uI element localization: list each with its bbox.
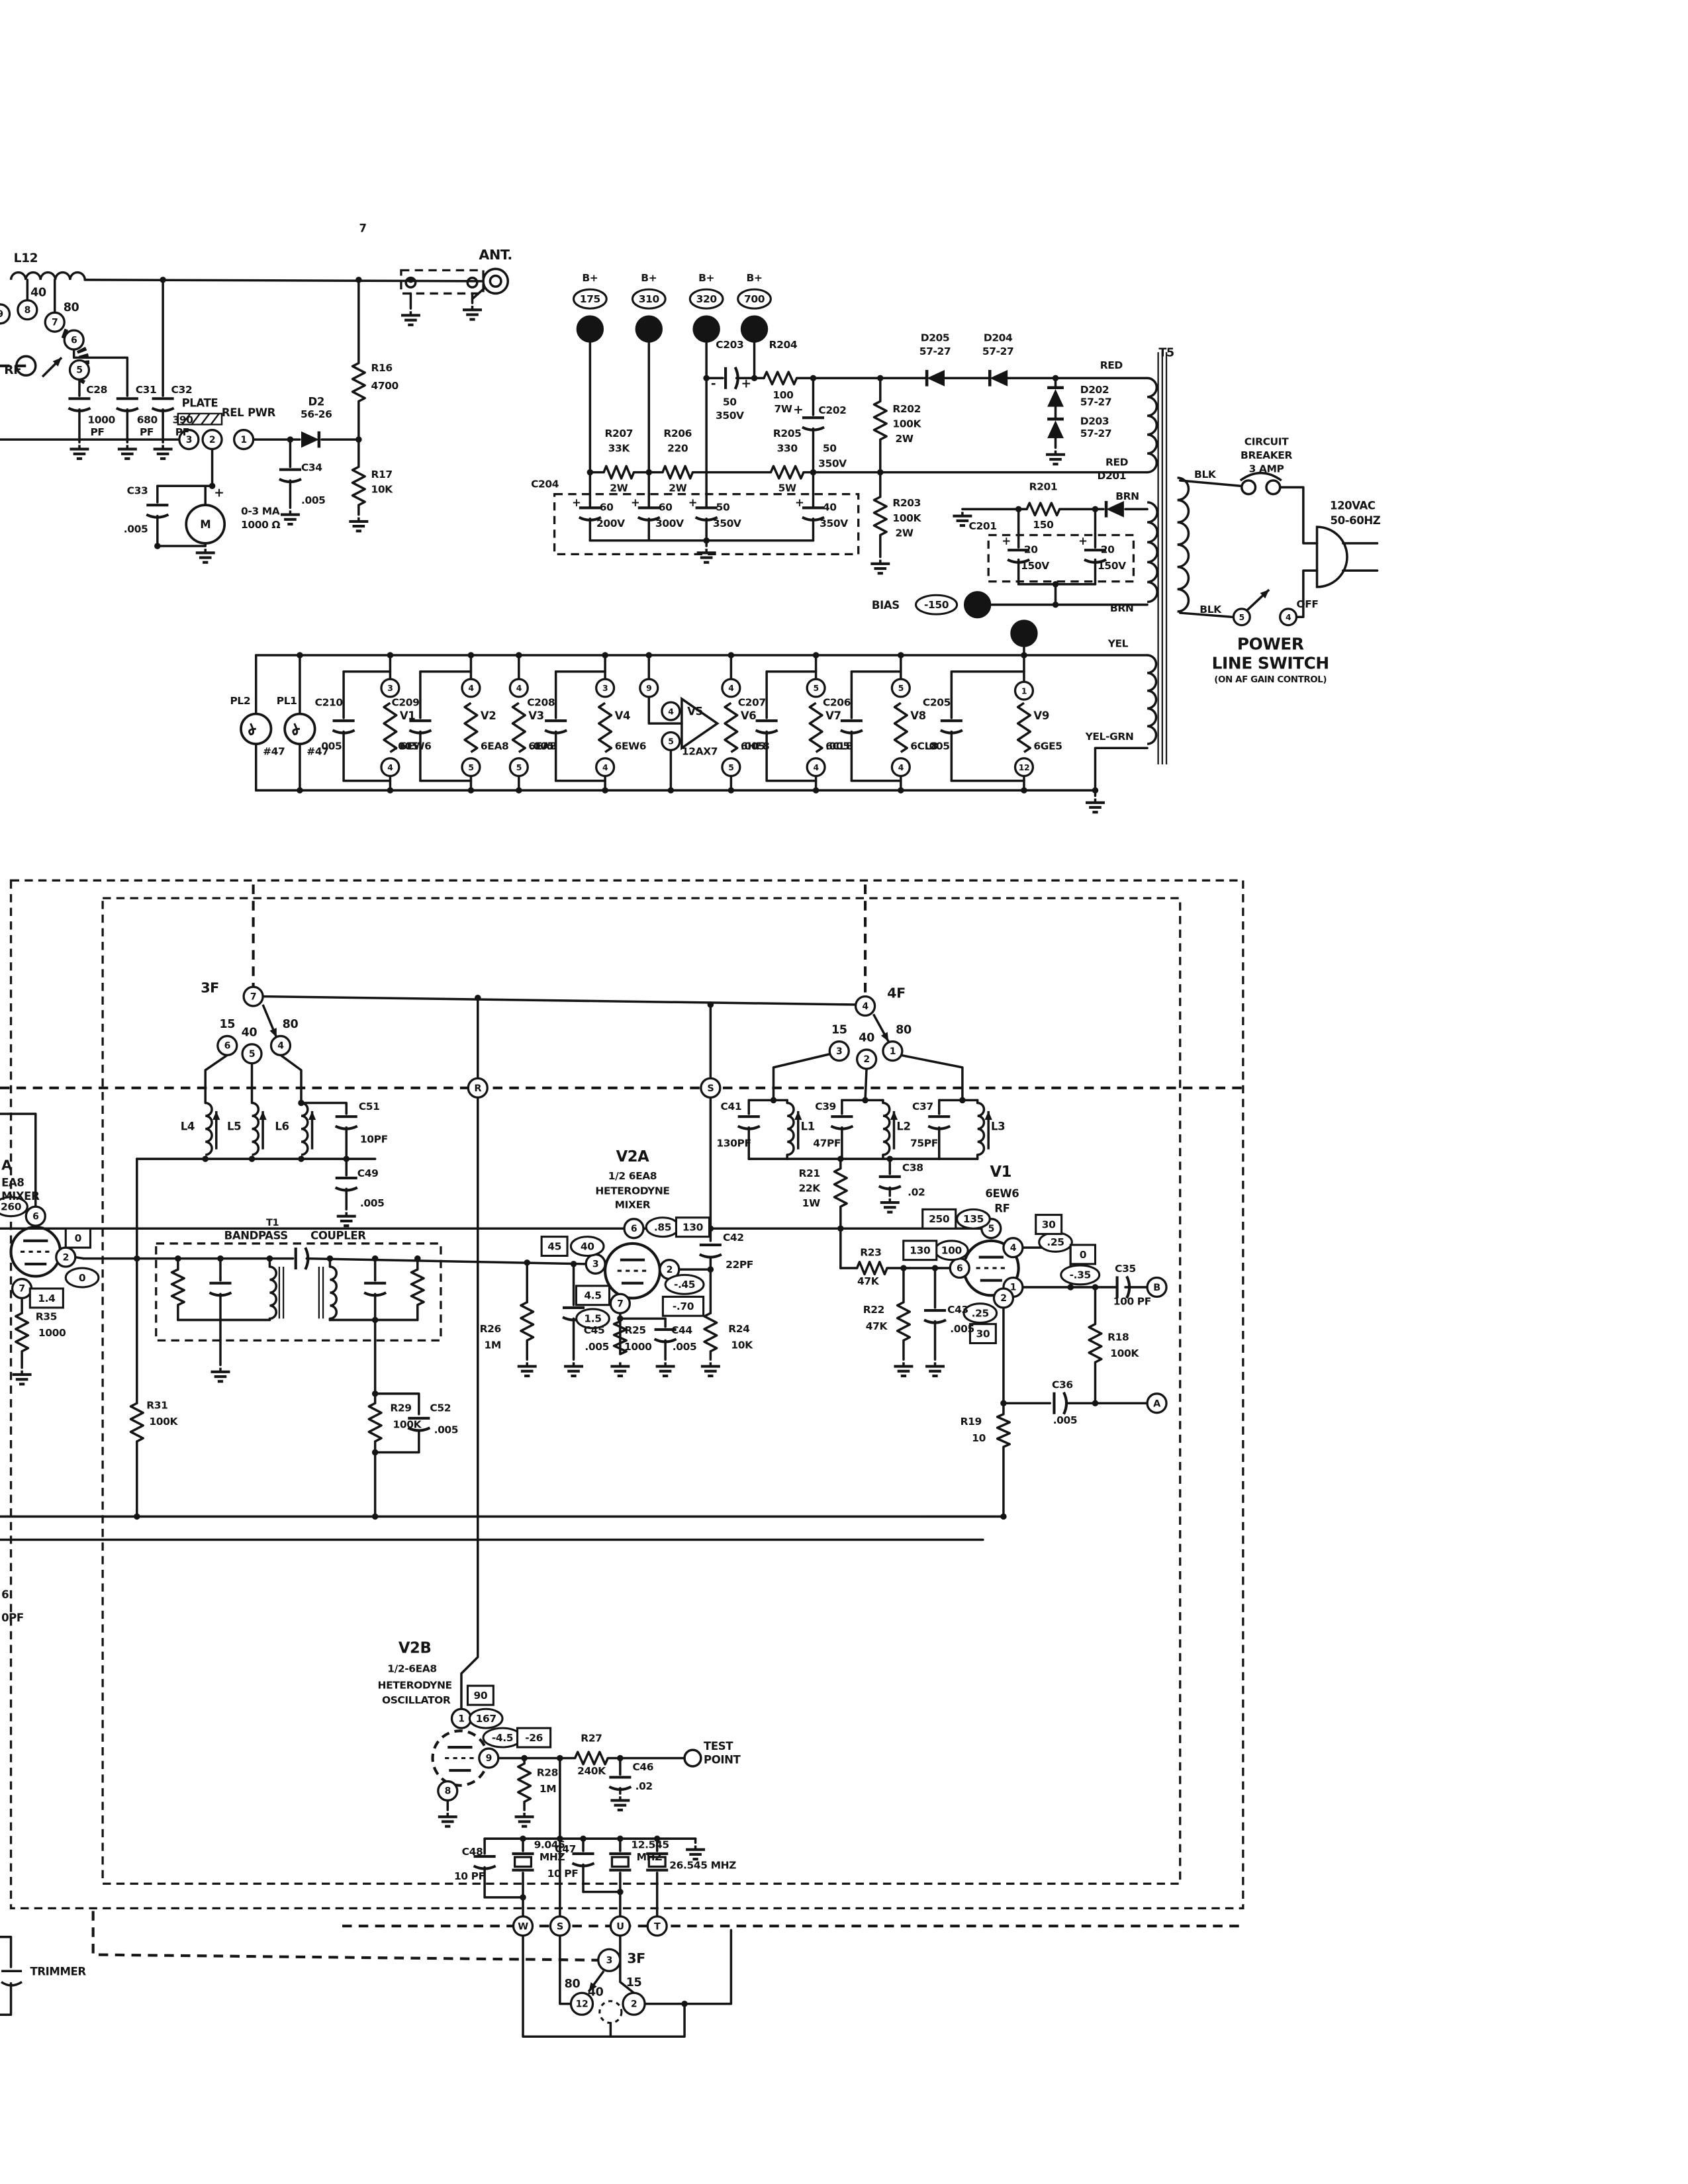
pin-label-2: 2 [63, 1252, 69, 1263]
junction-dot [877, 375, 884, 381]
resistor-v-24 [1018, 703, 1031, 752]
junction-dot [898, 652, 904, 658]
junction-dot [1000, 1514, 1007, 1520]
coil-v-6 [269, 1267, 276, 1318]
junction-dot [372, 1390, 379, 1396]
junction-dot [1021, 652, 1027, 658]
label-pf: PF [90, 426, 104, 438]
pin-label-5: 5 [1239, 612, 1244, 622]
junction-dot [524, 1259, 530, 1265]
label-40: 40 [823, 501, 837, 513]
label-c49: C49 [357, 1167, 379, 1179]
arrow-head [259, 1111, 266, 1120]
label-r35: R35 [36, 1310, 57, 1322]
circle-1 [490, 276, 501, 287]
label-c47: C47 [555, 1843, 576, 1855]
label-10k: 10K [731, 1340, 753, 1351]
pin-label-3: 3 [836, 1046, 842, 1057]
diode [1047, 420, 1064, 438]
junction-dot [703, 375, 710, 381]
pin-label-5: 5 [988, 1224, 994, 1234]
pin-label-4: 4 [516, 683, 522, 693]
label-.005: .005 [825, 740, 850, 752]
label-c32: C32 [171, 384, 193, 396]
label-5w: 5W [778, 482, 796, 494]
label-2w: 2W [669, 482, 686, 494]
junction-dot [728, 652, 735, 658]
voltage-box-label: 250 [929, 1213, 950, 1225]
junction-dot [327, 1255, 334, 1261]
voltage-oval-label: 167 [476, 1713, 496, 1725]
label-26.545-mhz: 26.545 MHZ [669, 1860, 736, 1872]
arrow-head [890, 1111, 898, 1120]
label-r25: R25 [624, 1324, 645, 1336]
label-.005: .005 [530, 740, 554, 752]
label-150v: 150V [1098, 560, 1126, 572]
junction-dot [343, 1156, 350, 1161]
label-yel-grn: YEL-GRN [1085, 731, 1134, 743]
label-.005: .005 [124, 523, 148, 535]
terminal-letter-F: F [1019, 625, 1029, 641]
label-v4: V4 [615, 709, 630, 722]
pin-label-5: 5 [249, 1049, 255, 1060]
label-60: 60 [659, 501, 673, 513]
label-d2: D2 [308, 396, 324, 408]
terminal-letter-R: R [474, 1083, 481, 1094]
label-l6: L6 [275, 1120, 289, 1133]
resistor-v-15 [518, 1764, 531, 1802]
label-.005: .005 [673, 1341, 697, 1353]
label-r16: R16 [371, 362, 392, 374]
junction-dot [646, 469, 653, 475]
label-red: RED [1100, 359, 1123, 371]
junction-dot [728, 787, 735, 793]
label-v1: V1 [400, 709, 415, 722]
voltage-oval-label: 310 [639, 293, 660, 305]
wire-177 [865, 1068, 867, 1101]
label-r23: R23 [860, 1247, 881, 1259]
crystal-body [612, 1857, 628, 1866]
capacitor-plate-curved [700, 1254, 722, 1257]
pin-label-4: 4 [277, 1041, 284, 1052]
voltage-oval-label: 135 [963, 1213, 984, 1225]
label-r205: R205 [773, 428, 802, 439]
label-heterodyne: HETERODYNE [378, 1679, 452, 1691]
coil-0 [11, 273, 85, 280]
label-d201: D201 [1098, 470, 1127, 482]
label-c44: C44 [671, 1324, 692, 1336]
voltage-oval-label: 40 [581, 1240, 594, 1252]
wire-130 [461, 1097, 478, 1709]
label-.005: .005 [301, 494, 326, 506]
label-heterodyne: HETERODYNE [595, 1185, 669, 1197]
pin-label-7: 7 [617, 1298, 623, 1309]
label-100k: 100K [393, 1418, 422, 1430]
line-plug [1317, 527, 1347, 587]
label-c33: C33 [127, 485, 148, 497]
label-350v: 350V [820, 518, 848, 529]
label-mixer: MIXER [1, 1190, 40, 1203]
arrow-head [308, 1111, 316, 1120]
junction-dot [249, 1156, 256, 1161]
label-1000: 1000 [624, 1341, 652, 1353]
label-4700: 4700 [371, 380, 399, 392]
label-.005: .005 [318, 740, 342, 752]
coil-v-3 [787, 1103, 794, 1155]
junction-dot [287, 436, 294, 442]
label-120vac: 120VAC [1330, 499, 1376, 512]
circle-6 [1266, 480, 1280, 494]
junction-dot [387, 652, 394, 658]
label-50: 50 [823, 443, 837, 455]
resistor-h-6 [575, 1752, 608, 1764]
label-80: 80 [64, 301, 79, 314]
label-off: OFF [1297, 598, 1319, 610]
junction-dot [898, 787, 904, 793]
label-bandpass: BANDPASS [224, 1230, 288, 1242]
label-l5: L5 [227, 1120, 241, 1133]
resistor-v-3 [874, 497, 886, 535]
junction-dot [372, 1449, 379, 1455]
pin-label-1: 1 [1021, 686, 1027, 696]
voltage-box-label: 30 [976, 1328, 990, 1340]
terminal-letter-D: D [749, 322, 760, 338]
label-l1: L1 [801, 1120, 815, 1133]
label-57-27: 57-27 [1080, 428, 1111, 439]
pin-label-6: 6 [957, 1263, 963, 1274]
coil-v-10 [1147, 655, 1156, 744]
label-r21: R21 [799, 1167, 820, 1179]
label-pl2: PL2 [230, 695, 250, 707]
resistor-v-20 [599, 703, 612, 752]
terminal-letter-B: B [644, 322, 654, 338]
label-v7: V7 [825, 709, 841, 722]
label-pf: PF [140, 426, 154, 438]
pin-label-3: 3 [592, 1259, 598, 1270]
label-t1: T1 [266, 1218, 279, 1228]
voltage-box-label: 90 [474, 1690, 488, 1702]
resistor-h-3 [764, 372, 797, 385]
voltage-box-label: 130 [682, 1222, 704, 1234]
pin-label-4: 4 [387, 762, 393, 772]
label-.005: .005 [1053, 1414, 1078, 1426]
label-v2b: V2B [399, 1640, 432, 1657]
wire-128 [263, 997, 855, 1005]
voltage-oval-label: -.35 [1070, 1269, 1091, 1281]
label-c37: C37 [912, 1101, 933, 1113]
label-l12: L12 [14, 251, 38, 265]
wire-136 [205, 1055, 227, 1103]
junction-dot [1092, 787, 1099, 793]
voltage-oval-label: -150 [924, 599, 949, 611]
junction-dot [959, 1097, 966, 1103]
label-40: 40 [588, 1985, 604, 1999]
label-c28: C28 [86, 384, 107, 396]
terminal-letter-W: W [518, 1921, 528, 1932]
label-300v: 300V [655, 518, 684, 529]
label-l4: L4 [181, 1120, 195, 1133]
label-.005: .005 [741, 740, 765, 752]
resistor-v-1 [353, 467, 365, 505]
label-red: RED [1105, 456, 1129, 468]
junction-dot [1068, 1284, 1074, 1290]
dashed-boundary-1 [103, 898, 1180, 1884]
junction-dot [810, 375, 817, 381]
resistor-v-22 [810, 703, 822, 752]
junction-dot [475, 995, 481, 1001]
circle-4 [684, 1750, 701, 1766]
label-d204: D204 [984, 332, 1013, 344]
label-v9: V9 [1033, 709, 1049, 722]
junction-dot [372, 1255, 379, 1261]
terminal-letter-C: C [702, 322, 712, 338]
label-350v: 350V [716, 410, 744, 422]
terminal-letter-S: S [557, 1921, 563, 1932]
diode [1047, 389, 1064, 407]
label-22k: 22K [798, 1183, 821, 1195]
voltage-oval-label: .25 [972, 1308, 989, 1320]
label-r17: R17 [371, 469, 392, 480]
voltage-box-label: 0 [75, 1232, 82, 1244]
label-power: POWER [1237, 635, 1304, 654]
label-l2: L2 [896, 1120, 910, 1133]
coil-v-7 [330, 1267, 336, 1318]
junction-dot [267, 1255, 273, 1261]
voltage-box-label: 1.4 [38, 1293, 56, 1304]
label-20: 20 [1101, 543, 1115, 555]
label-20: 20 [1024, 543, 1038, 555]
pin-label-9: 9 [486, 1753, 492, 1764]
label-33k: 33K [608, 443, 631, 455]
pin-label-5: 5 [728, 762, 733, 772]
wire-248 [560, 1936, 571, 2004]
label-100k: 100K [892, 512, 921, 524]
pin-label-3: 3 [387, 683, 393, 693]
label-test: TEST [704, 1740, 733, 1752]
pin-label-12: 12 [576, 1999, 588, 2010]
junction-dot [134, 1255, 140, 1261]
wire-173 [75, 1257, 83, 1259]
junction-dot [355, 436, 362, 442]
pin-label-7: 7 [250, 991, 256, 1002]
resistor-v-14 [998, 1414, 1010, 1447]
label-b: B+ [747, 272, 763, 284]
label-4f: 4F [887, 985, 906, 1001]
coil-v-8 [1147, 378, 1156, 472]
label-c45: C45 [584, 1324, 605, 1336]
label-.005: .005 [434, 1424, 459, 1436]
label-r18: R18 [1107, 1331, 1129, 1343]
voltage-box-label: -.70 [673, 1300, 694, 1312]
voltage-box-label: 4.5 [584, 1290, 601, 1302]
label-7: 7 [359, 222, 366, 235]
label-40: 40 [859, 1032, 874, 1045]
tube-envelope-0 [605, 1244, 660, 1298]
label-15: 15 [626, 1976, 642, 1989]
junction-dot [617, 1835, 624, 1841]
voltage-oval-label: -4.5 [492, 1732, 513, 1744]
junction-dot [468, 652, 475, 658]
label-150: 150 [1033, 519, 1054, 531]
label-350v: 350V [818, 457, 847, 469]
label-brn: BRN [1110, 602, 1133, 614]
switch-pin-dashed [600, 2001, 622, 2023]
label-d205: D205 [921, 332, 950, 344]
junction-dot [1021, 787, 1027, 793]
label-r28: R28 [537, 1766, 558, 1778]
label-100k: 100K [892, 418, 921, 430]
label-mixer: MIXER [615, 1199, 651, 1210]
label-150v: 150V [1021, 560, 1049, 572]
junction-dot [602, 787, 608, 793]
label-47k: 47K [866, 1320, 888, 1332]
pin-label-5: 5 [516, 762, 522, 772]
pin-label-3: 3 [606, 1956, 612, 1966]
label-2w: 2W [610, 482, 628, 494]
crystal-body [515, 1857, 532, 1866]
junction-dot [708, 1001, 714, 1007]
label-r206: R206 [663, 428, 692, 439]
label-240k: 240K [577, 1765, 606, 1777]
resistor-v-18 [465, 703, 477, 752]
voltage-oval-label: 1.5 [584, 1313, 601, 1325]
voltage-oval-label: 320 [696, 293, 718, 305]
label-680: 680 [137, 414, 158, 426]
junction-dot [813, 652, 820, 658]
label-1000: 1000 [38, 1327, 66, 1339]
resistor-h-4 [1027, 503, 1060, 516]
terminal-letter-B: B [1153, 1283, 1160, 1293]
coil-v-1 [252, 1103, 259, 1155]
label-.005: .005 [925, 740, 950, 752]
label-c31: C31 [136, 384, 157, 396]
label-57-27: 57-27 [1080, 396, 1111, 408]
label-txt: + [688, 496, 697, 509]
pin-label-2: 2 [209, 435, 215, 445]
wire-72 [1282, 487, 1317, 543]
junction-dot [217, 1255, 224, 1261]
label-mhz: MHZ [637, 1851, 663, 1863]
resistor-v-6 [411, 1269, 424, 1305]
label-.005: .005 [395, 740, 419, 752]
label-txt: + [572, 496, 581, 509]
label-v3: V3 [528, 709, 543, 722]
resistor-v-0 [353, 363, 365, 402]
label-6ge5: 6GE5 [1033, 740, 1062, 752]
label-100: 100 [773, 389, 794, 401]
junction-dot [877, 469, 884, 475]
label-txt: - [711, 377, 716, 391]
label-c46: C46 [632, 1761, 653, 1773]
label-b: B+ [641, 272, 657, 284]
label-v1: V1 [990, 1163, 1012, 1181]
terminal-letter-T: T [654, 1921, 661, 1932]
label-brn: BRN [1115, 490, 1139, 502]
junction-dot [468, 787, 475, 793]
junction-dot [1053, 581, 1059, 587]
junction-dot [557, 1755, 563, 1761]
label-r202: R202 [892, 403, 921, 415]
tube-envelope-2 [11, 1227, 60, 1276]
wire-253 [0, 1937, 11, 1967]
voltage-oval-label: -.45 [674, 1279, 695, 1291]
resistor-v-8 [521, 1302, 534, 1341]
diode [1106, 501, 1124, 518]
label-txt: + [795, 496, 804, 509]
label-50: 50 [716, 501, 730, 513]
label-r203: R203 [892, 497, 921, 509]
junction-dot [708, 1266, 714, 1272]
wire-254 [0, 1983, 11, 2015]
dashed-boundary-0 [11, 880, 1243, 1908]
label-c34: C34 [301, 462, 322, 474]
label-100-pf: 100 PF [1113, 1296, 1151, 1308]
label-390: 390 [173, 414, 194, 426]
junction-dot [387, 787, 394, 793]
wire-0 [85, 280, 483, 281]
voltage-box-label: 130 [910, 1245, 931, 1257]
capacitor-plate-curved [1064, 1392, 1066, 1414]
junction-dot [646, 652, 653, 658]
resistor-v-23 [895, 703, 908, 752]
junction-dot [175, 1255, 181, 1261]
label-c209: C209 [391, 696, 419, 708]
resistor-v-4 [131, 1403, 144, 1441]
voltage-box-label: 0 [1080, 1249, 1087, 1261]
junction-dot [837, 1156, 844, 1161]
label-txt: + [214, 486, 224, 500]
pin-label-6: 6 [71, 335, 77, 345]
pin-label-2: 2 [667, 1265, 673, 1275]
resistor-v-2 [874, 401, 886, 439]
schematic-canvas: 9876532154344545349454554541127654432163… [0, 0, 1688, 2184]
label-c48: C48 [462, 1846, 483, 1858]
resistor-h-2 [771, 466, 804, 478]
junction-dot [297, 787, 303, 793]
resistor-v-12 [835, 1169, 847, 1207]
label-txt: + [631, 496, 639, 509]
diode [301, 432, 319, 448]
resistor-v-10 [898, 1302, 910, 1341]
junction-dot [414, 1255, 421, 1261]
label-6ea8: 6EA8 [481, 740, 508, 752]
junction-dot [668, 787, 675, 793]
label-trimmer: TRIMMER [30, 1965, 86, 1978]
junction-dot [887, 1156, 894, 1161]
junction-dot [160, 277, 166, 283]
label-pwr: PWR [248, 406, 276, 419]
label-c205: C205 [923, 696, 951, 708]
arrow-head [269, 1028, 276, 1037]
label-r27: R27 [581, 1733, 602, 1745]
label-40: 40 [242, 1026, 258, 1039]
label-pl1: PL1 [277, 695, 297, 707]
label-c203: C203 [716, 339, 743, 351]
label-15: 15 [831, 1023, 847, 1036]
label-v2: V2 [481, 709, 496, 722]
pin-label-7: 7 [19, 1284, 24, 1295]
terminal-letter-U: U [616, 1921, 624, 1932]
junction-dot [617, 1316, 624, 1322]
label-10-pf: 10 PF [547, 1868, 579, 1880]
label-v2a: V2A [616, 1148, 650, 1165]
label-ea8: EA8 [1, 1176, 24, 1189]
pin-label-6: 6 [32, 1211, 39, 1222]
resistor-v-21 [725, 703, 737, 752]
resistor-v-5 [172, 1269, 185, 1305]
label-57-27: 57-27 [919, 345, 951, 357]
label-6ew6: 6EW6 [985, 1187, 1019, 1200]
